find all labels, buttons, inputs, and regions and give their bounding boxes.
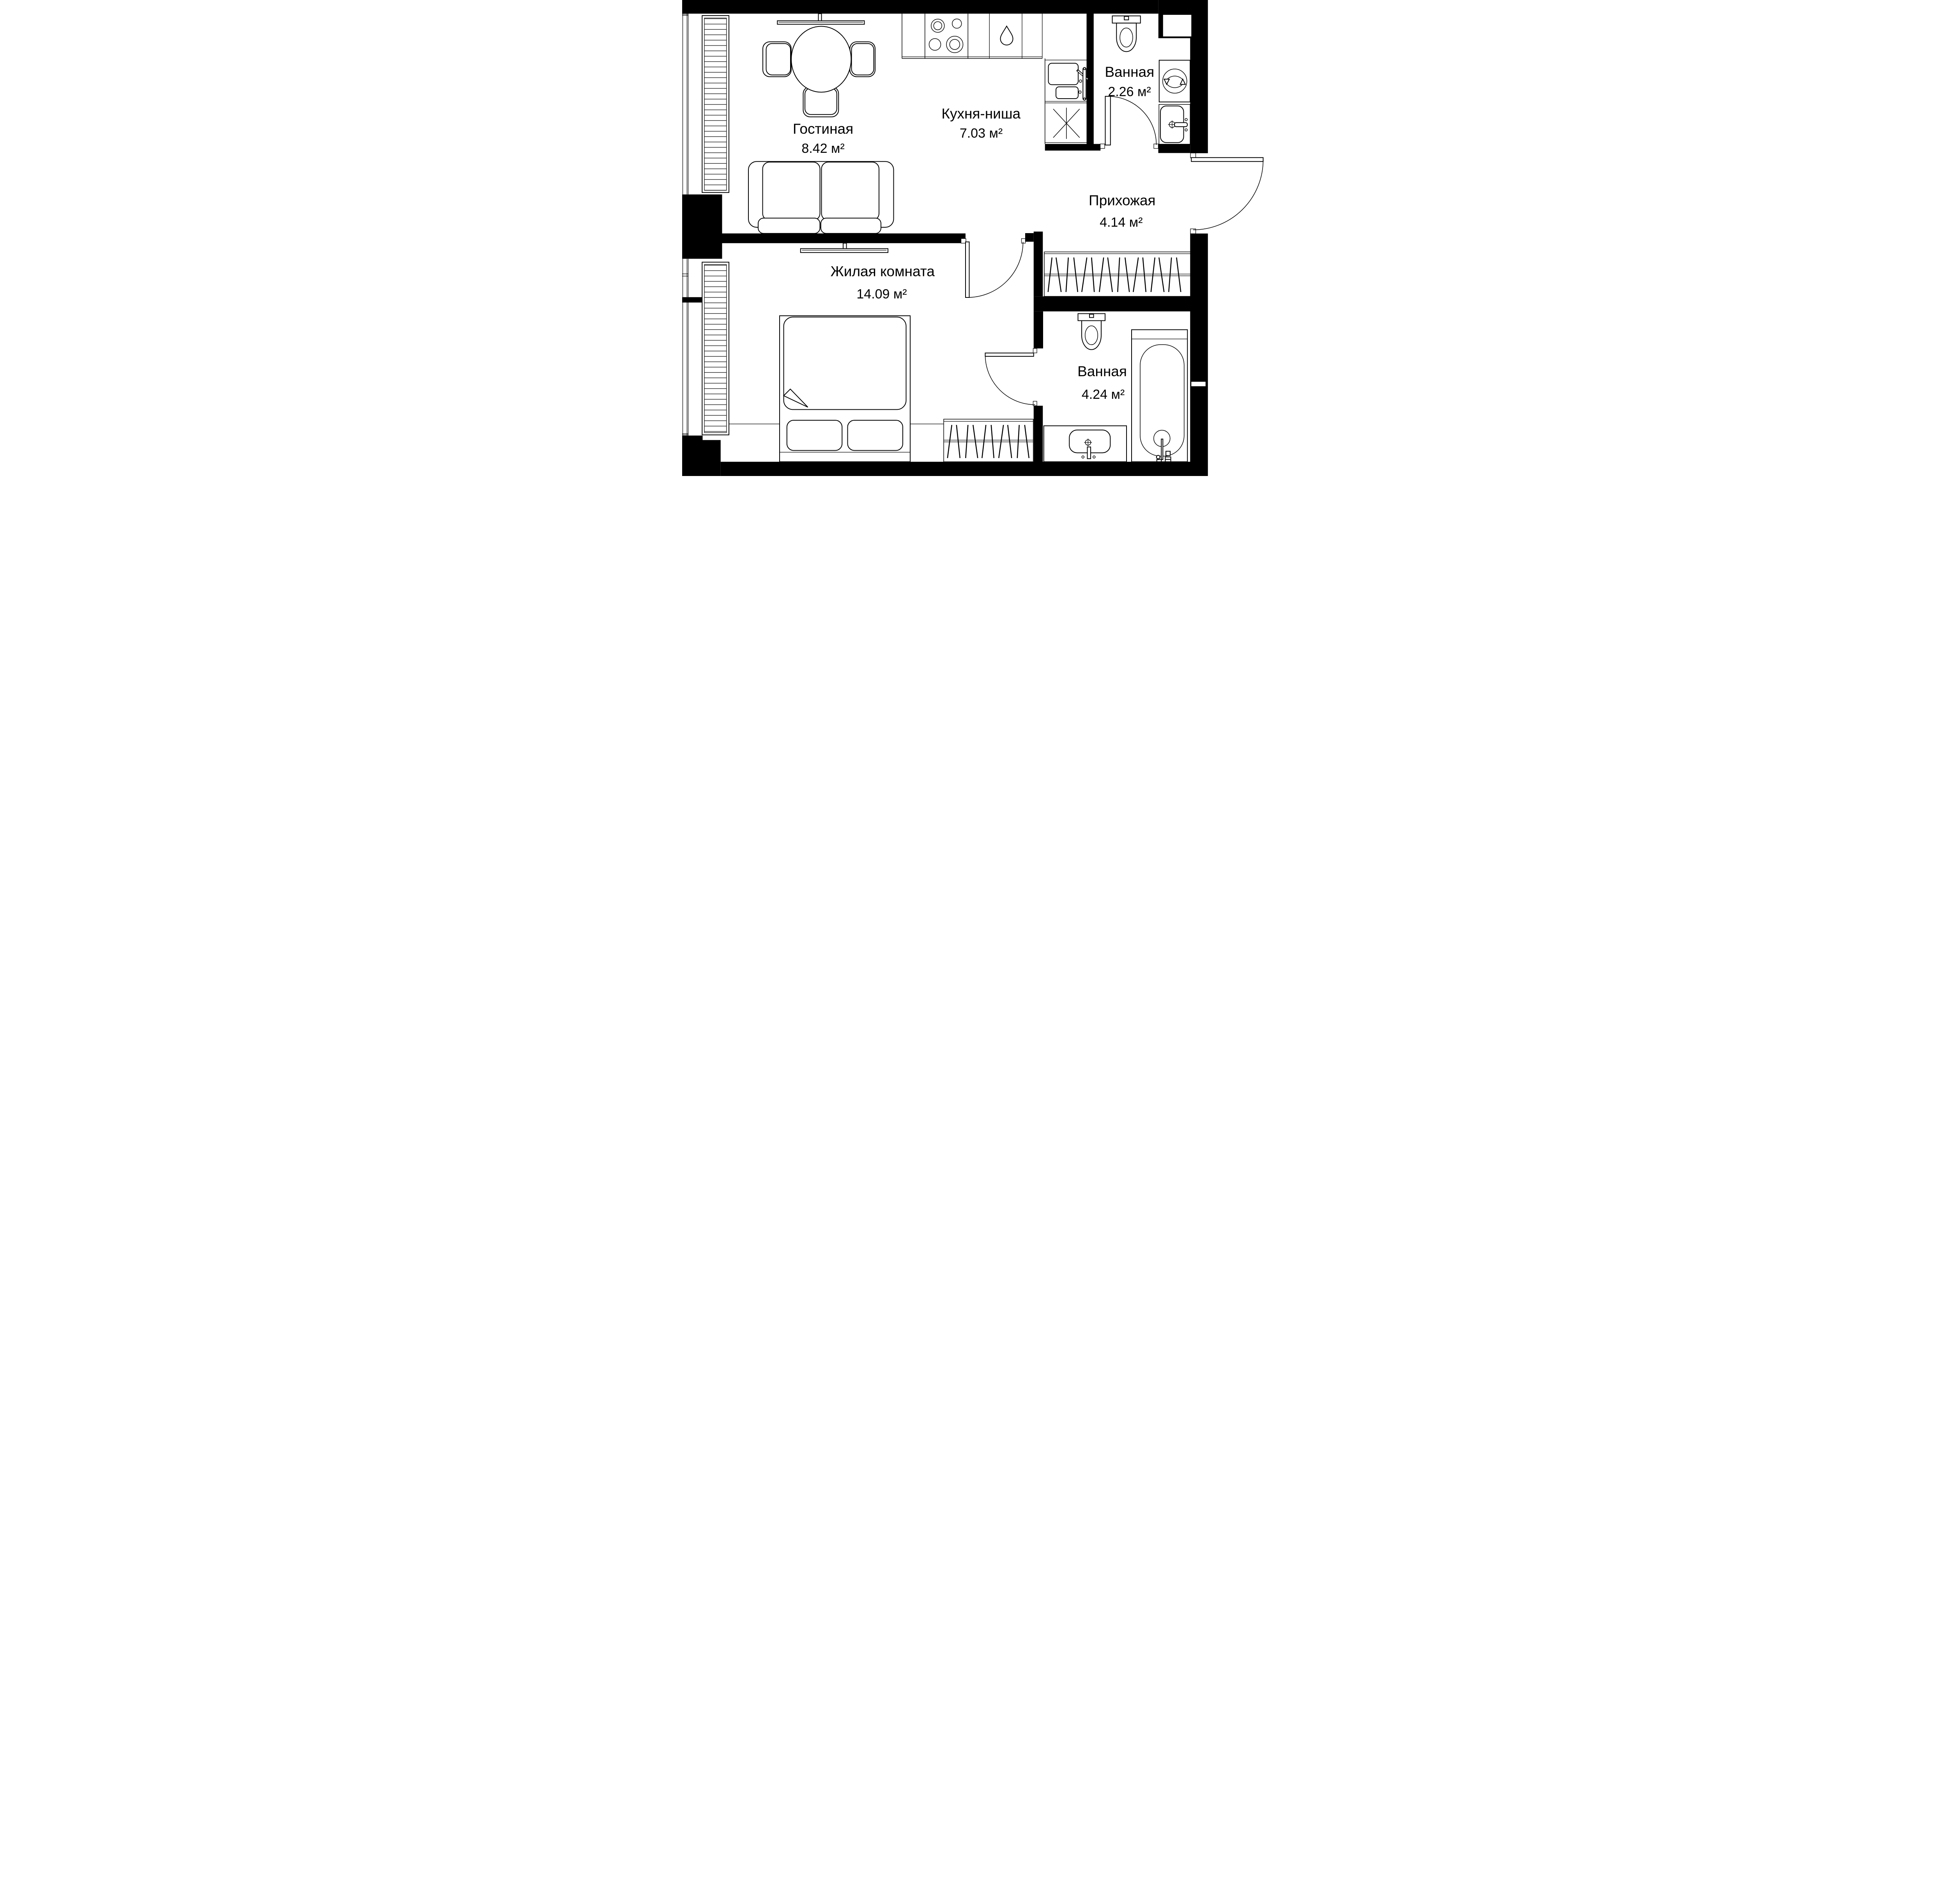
radiator-icon bbox=[702, 16, 729, 193]
snowflake-appliance-icon bbox=[1053, 108, 1080, 139]
washing-machine-icon bbox=[1159, 60, 1190, 102]
room-label-vannaya-1: Ванная bbox=[1105, 64, 1154, 80]
wardrobe-hangers-icon bbox=[1044, 252, 1192, 296]
room-area-gostinaya: 8.42 м² bbox=[801, 141, 844, 156]
cooktop-icon bbox=[929, 19, 963, 53]
room-label-prihozhaya: Прихожая bbox=[1089, 192, 1155, 208]
room-label-gostinaya: Гостиная bbox=[793, 121, 853, 137]
sofa-icon bbox=[748, 161, 894, 234]
tv-icon bbox=[777, 14, 864, 24]
bathtub-icon bbox=[1132, 330, 1187, 462]
room-label-kuhnya: Кухня-ниша bbox=[941, 106, 1020, 122]
wardrobe-hangers-icon bbox=[944, 419, 1033, 462]
dining-table-icon bbox=[791, 27, 851, 92]
entrance-door-icon bbox=[1190, 153, 1263, 234]
interior-door-icon bbox=[985, 349, 1037, 406]
water-drop-icon bbox=[1001, 26, 1013, 45]
kitchen-sink-icon bbox=[1049, 63, 1079, 99]
interior-door-icon bbox=[1100, 96, 1158, 149]
pillow-icon bbox=[848, 420, 903, 451]
chair-icon bbox=[763, 42, 791, 77]
towel-rail-icon bbox=[1083, 67, 1086, 100]
chair-icon bbox=[850, 42, 875, 77]
room-area-vannaya-2: 4.24 м² bbox=[1082, 387, 1125, 402]
room-label-vannaya-2: Ванная bbox=[1077, 363, 1127, 379]
vanity-sink-icon bbox=[1044, 426, 1127, 462]
tv-icon bbox=[801, 243, 888, 253]
room-label-zhilaya: Жилая комната bbox=[831, 263, 935, 279]
room-area-vannaya-1: 2.26 м² bbox=[1108, 84, 1151, 99]
bed-icon bbox=[780, 316, 910, 462]
radiator-icon bbox=[702, 262, 729, 435]
pillow-icon bbox=[787, 420, 842, 451]
toilet-icon bbox=[1078, 314, 1105, 350]
room-area-zhilaya: 14.09 м² bbox=[856, 287, 907, 302]
toilet-icon bbox=[1112, 16, 1141, 52]
room-area-prihozhaya: 4.14 м² bbox=[1100, 215, 1143, 230]
interior-door-icon bbox=[961, 239, 1026, 297]
room-area-kuhnya: 7.03 м² bbox=[960, 126, 1003, 141]
bathroom-sink-icon bbox=[1159, 104, 1190, 144]
floor-plan: Гостиная 8.42 м² Кухня-ниша 7.03 м² Ванн… bbox=[682, 0, 1267, 476]
